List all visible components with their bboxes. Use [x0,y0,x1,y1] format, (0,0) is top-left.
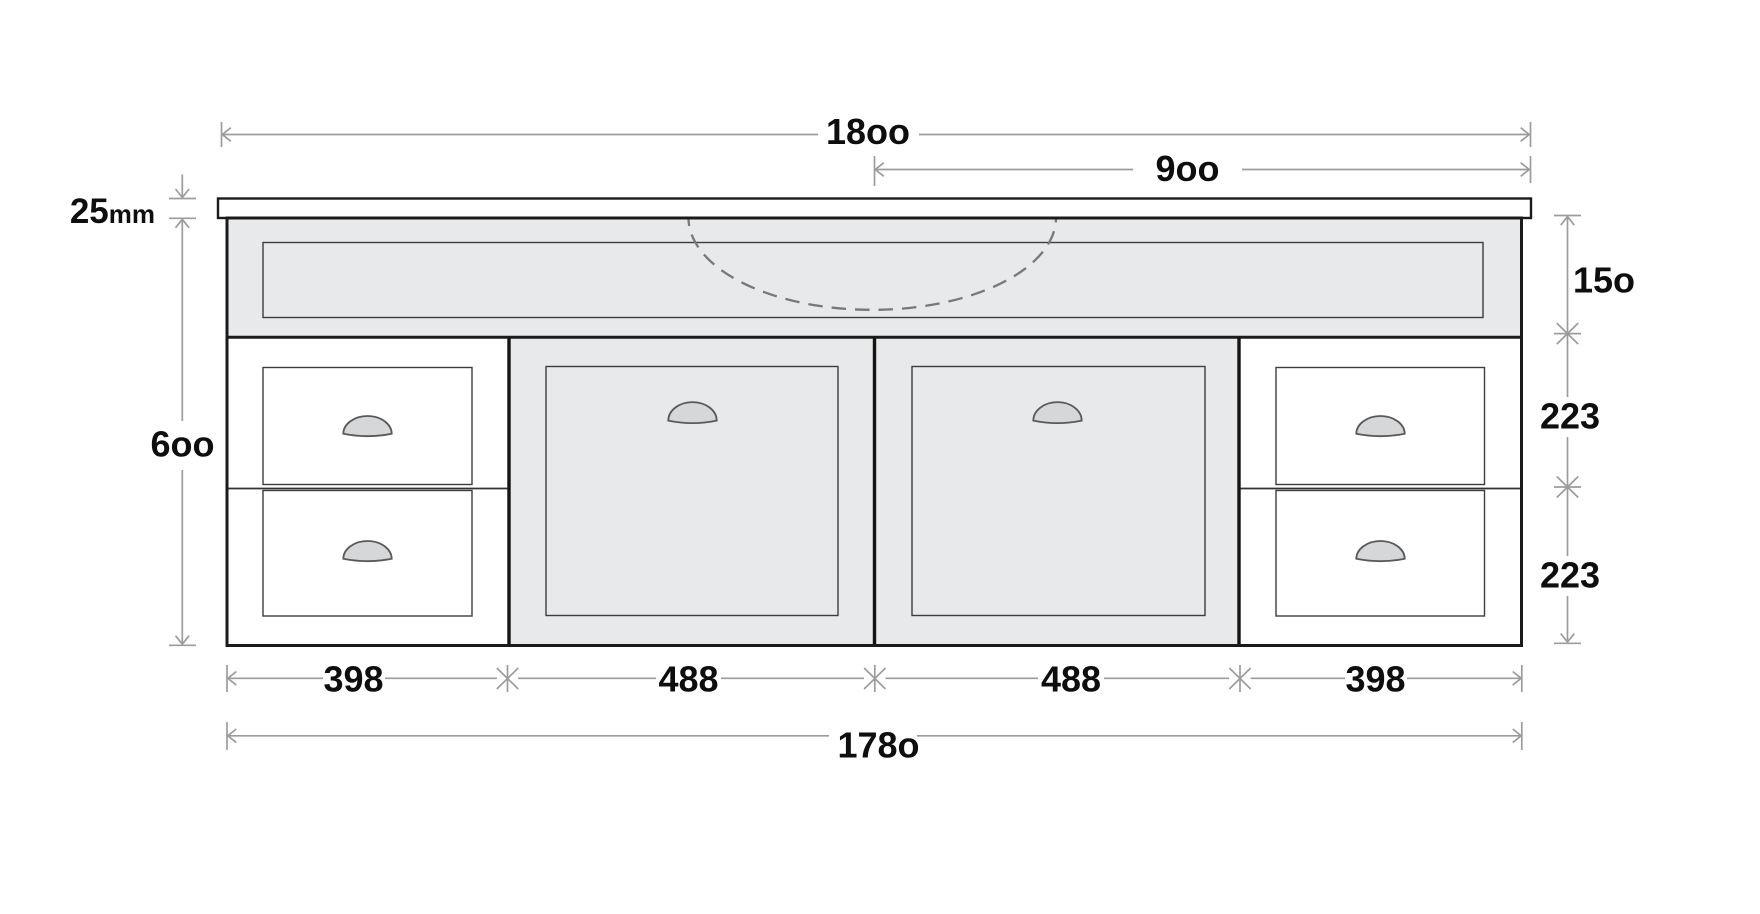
svg-text:223: 223 [1540,554,1600,595]
svg-text:178o: 178o [837,724,919,765]
svg-text:488: 488 [1041,658,1101,699]
svg-text:18oo: 18oo [826,111,910,152]
svg-text:398: 398 [323,658,383,699]
svg-text:398: 398 [1345,658,1405,699]
svg-text:6oo: 6oo [150,423,214,464]
svg-text:223: 223 [1540,395,1600,436]
svg-text:9oo: 9oo [1155,148,1219,189]
svg-text:15o: 15o [1573,259,1635,300]
svg-text:488: 488 [658,658,718,699]
